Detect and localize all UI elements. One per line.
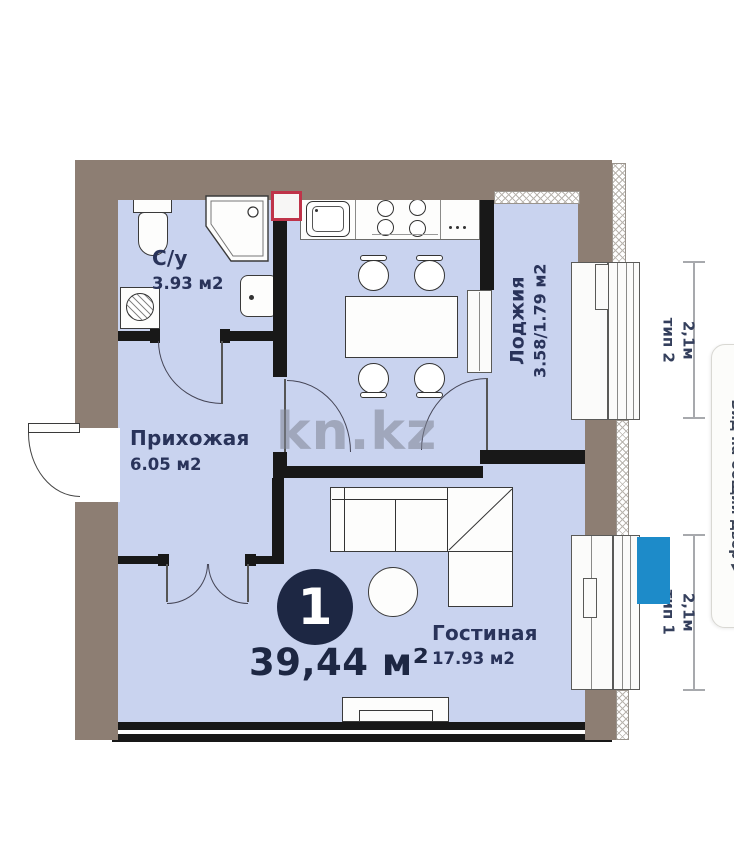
room-area-hallway: 6.05 м2 xyxy=(130,455,201,474)
arrow-icon: ▶ xyxy=(729,564,734,572)
bottom-window-band xyxy=(116,722,590,730)
kitchen-faucet-icon xyxy=(315,209,318,212)
bottom-window-band xyxy=(112,734,612,742)
wall-loggia-left xyxy=(480,195,494,290)
counter-divider xyxy=(440,198,441,239)
wall-bathroom-bottom xyxy=(222,331,287,341)
hatch-strip xyxy=(616,420,629,537)
chair xyxy=(358,260,389,291)
floor-plan: С/у 3.93 м2 Прихожая 6.05 м2 Гостиная 17… xyxy=(0,0,734,867)
wall-hall-living xyxy=(273,466,483,478)
watermark: kn.kz xyxy=(276,402,437,462)
stove-panel xyxy=(372,234,438,239)
side-note-pill: Вид на общий двор ▶ xyxy=(711,344,734,628)
window-type1-handle xyxy=(583,578,597,618)
loggia-window-line xyxy=(479,292,480,371)
drawer-dots-icon xyxy=(456,226,459,229)
entrance-door-leaf xyxy=(28,423,80,433)
dimension-tick xyxy=(683,534,705,536)
wall-bathroom-right xyxy=(273,217,287,377)
dimension-tick xyxy=(683,261,705,263)
sofa-back-line xyxy=(332,499,448,500)
wall-hall-living-vertical xyxy=(272,478,284,564)
chair-back xyxy=(360,255,387,261)
sofa-corner-line xyxy=(447,488,448,551)
chair xyxy=(414,260,445,291)
window-type2-handle xyxy=(595,264,609,310)
hatch-strip xyxy=(612,163,626,264)
blue-marker xyxy=(637,537,670,604)
dimension-label-type2: 2,1м тип 2 xyxy=(658,278,699,402)
room-label-hallway: Прихожая xyxy=(130,426,250,450)
drawer-dots-icon xyxy=(449,226,452,229)
dining-table xyxy=(345,296,458,358)
washing-machine-drum-icon xyxy=(126,293,154,321)
bathroom-door-leaf xyxy=(221,341,223,404)
counter-divider xyxy=(355,198,356,239)
balcony-door-leaf xyxy=(486,378,488,450)
hatch-strip xyxy=(616,690,629,740)
room-label-loggia: Лоджия 3.58/1.79 м2 xyxy=(505,251,550,391)
chair-back xyxy=(416,255,443,261)
entrance-opening xyxy=(73,428,120,502)
sofa-chaise xyxy=(448,551,513,607)
chair xyxy=(414,363,445,394)
drawer-dots-icon xyxy=(463,226,466,229)
living-door-leaf xyxy=(166,564,168,602)
stove-burner-icon xyxy=(377,200,394,217)
tv xyxy=(359,710,433,722)
outer-wall-right-mid xyxy=(585,420,616,535)
room-area-living: 17.93 м2 xyxy=(432,649,515,668)
chair xyxy=(358,363,389,394)
vent-shaft xyxy=(271,191,302,221)
room-label-bathroom: С/у xyxy=(152,246,188,270)
stove-burner-icon xyxy=(409,199,426,216)
outer-wall-top-right xyxy=(578,200,612,262)
dimension-tick xyxy=(683,689,705,691)
room-label-living: Гостиная xyxy=(432,621,538,645)
room-area-bathroom: 3.93 м2 xyxy=(152,274,223,293)
outer-wall-right-bottom xyxy=(585,690,616,740)
side-note-text: Вид на общий двор ▶ xyxy=(728,399,734,572)
total-area-label: 39,44 м² xyxy=(249,641,429,684)
sofa xyxy=(330,487,513,552)
sofa-arm-line xyxy=(344,488,345,551)
dimension-tick xyxy=(683,417,705,419)
window-type2-frame xyxy=(608,262,640,420)
hatch-strip xyxy=(494,191,580,204)
sink-faucet-icon xyxy=(249,295,254,300)
sofa-cushion-line xyxy=(395,500,396,551)
wall-loggia-bottom xyxy=(480,450,590,464)
chair-back xyxy=(360,392,387,398)
room-count-badge: 1 xyxy=(277,569,353,645)
chair-back xyxy=(416,392,443,398)
living-door-leaf xyxy=(247,564,249,602)
entrance-door-arc xyxy=(28,433,80,497)
round-rug xyxy=(368,567,418,617)
window-type1-frame xyxy=(613,535,640,690)
